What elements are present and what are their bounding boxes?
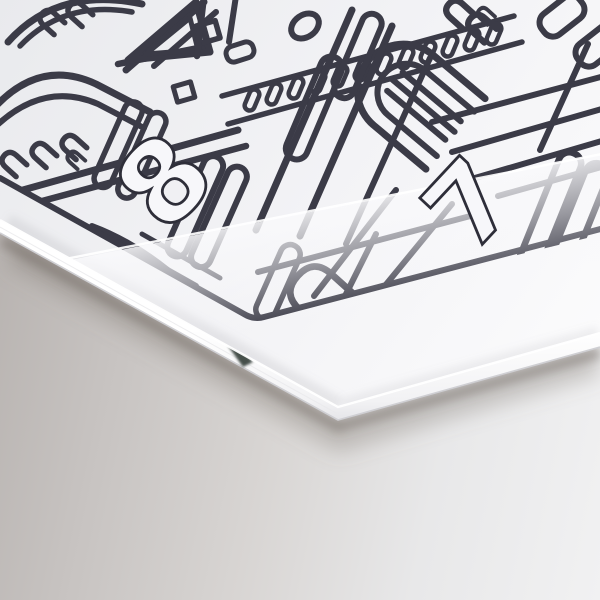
mockup-scene: 8 7 — [0, 0, 600, 600]
mockup-photo: 8 7 — [0, 0, 600, 600]
